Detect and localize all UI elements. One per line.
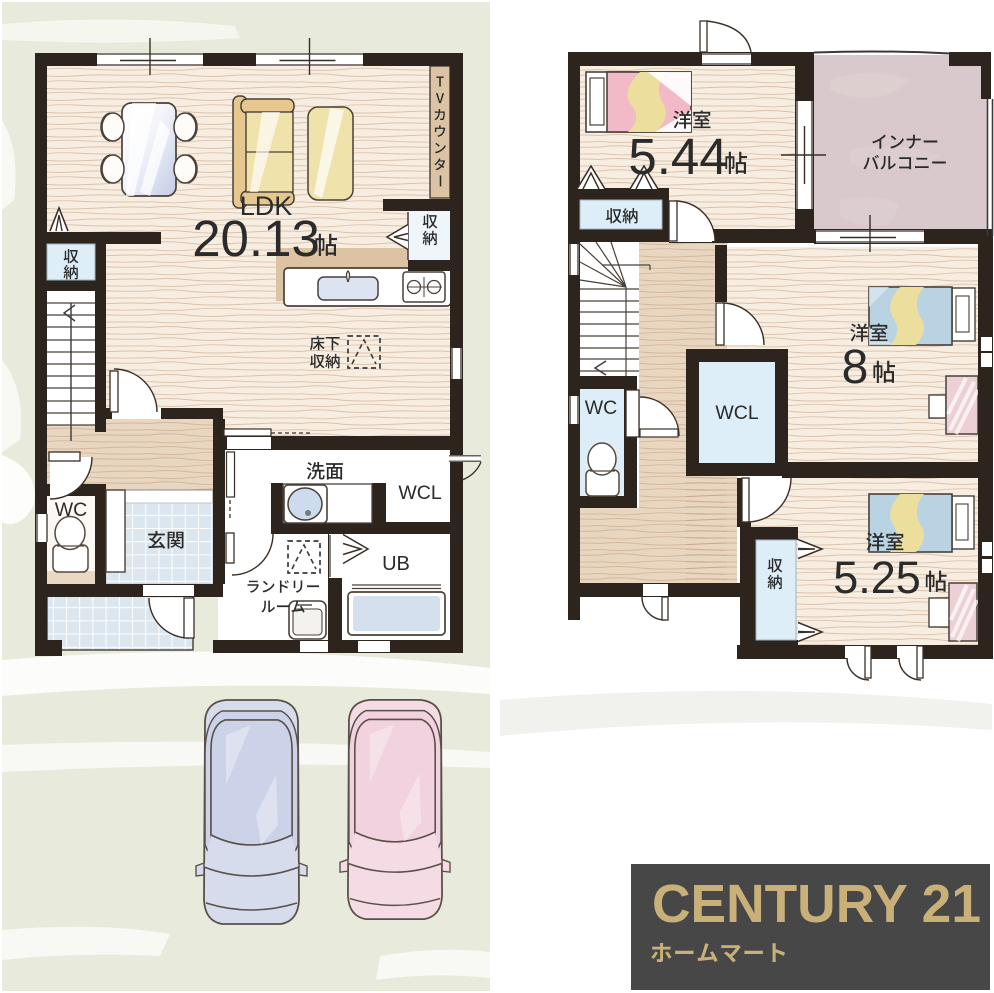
svg-text:WC: WC [585,397,618,419]
svg-text:CENTURY 21: CENTURY 21 [652,874,981,934]
svg-text:8: 8 [842,341,869,394]
svg-text:5.44: 5.44 [628,128,727,185]
svg-text:UB: UB [382,553,410,575]
svg-text:WC: WC [55,499,88,521]
svg-text:5.25: 5.25 [833,552,921,603]
svg-text:20.13: 20.13 [192,210,320,267]
svg-text:WCL: WCL [715,402,758,424]
svg-text:WCL: WCL [398,482,441,504]
